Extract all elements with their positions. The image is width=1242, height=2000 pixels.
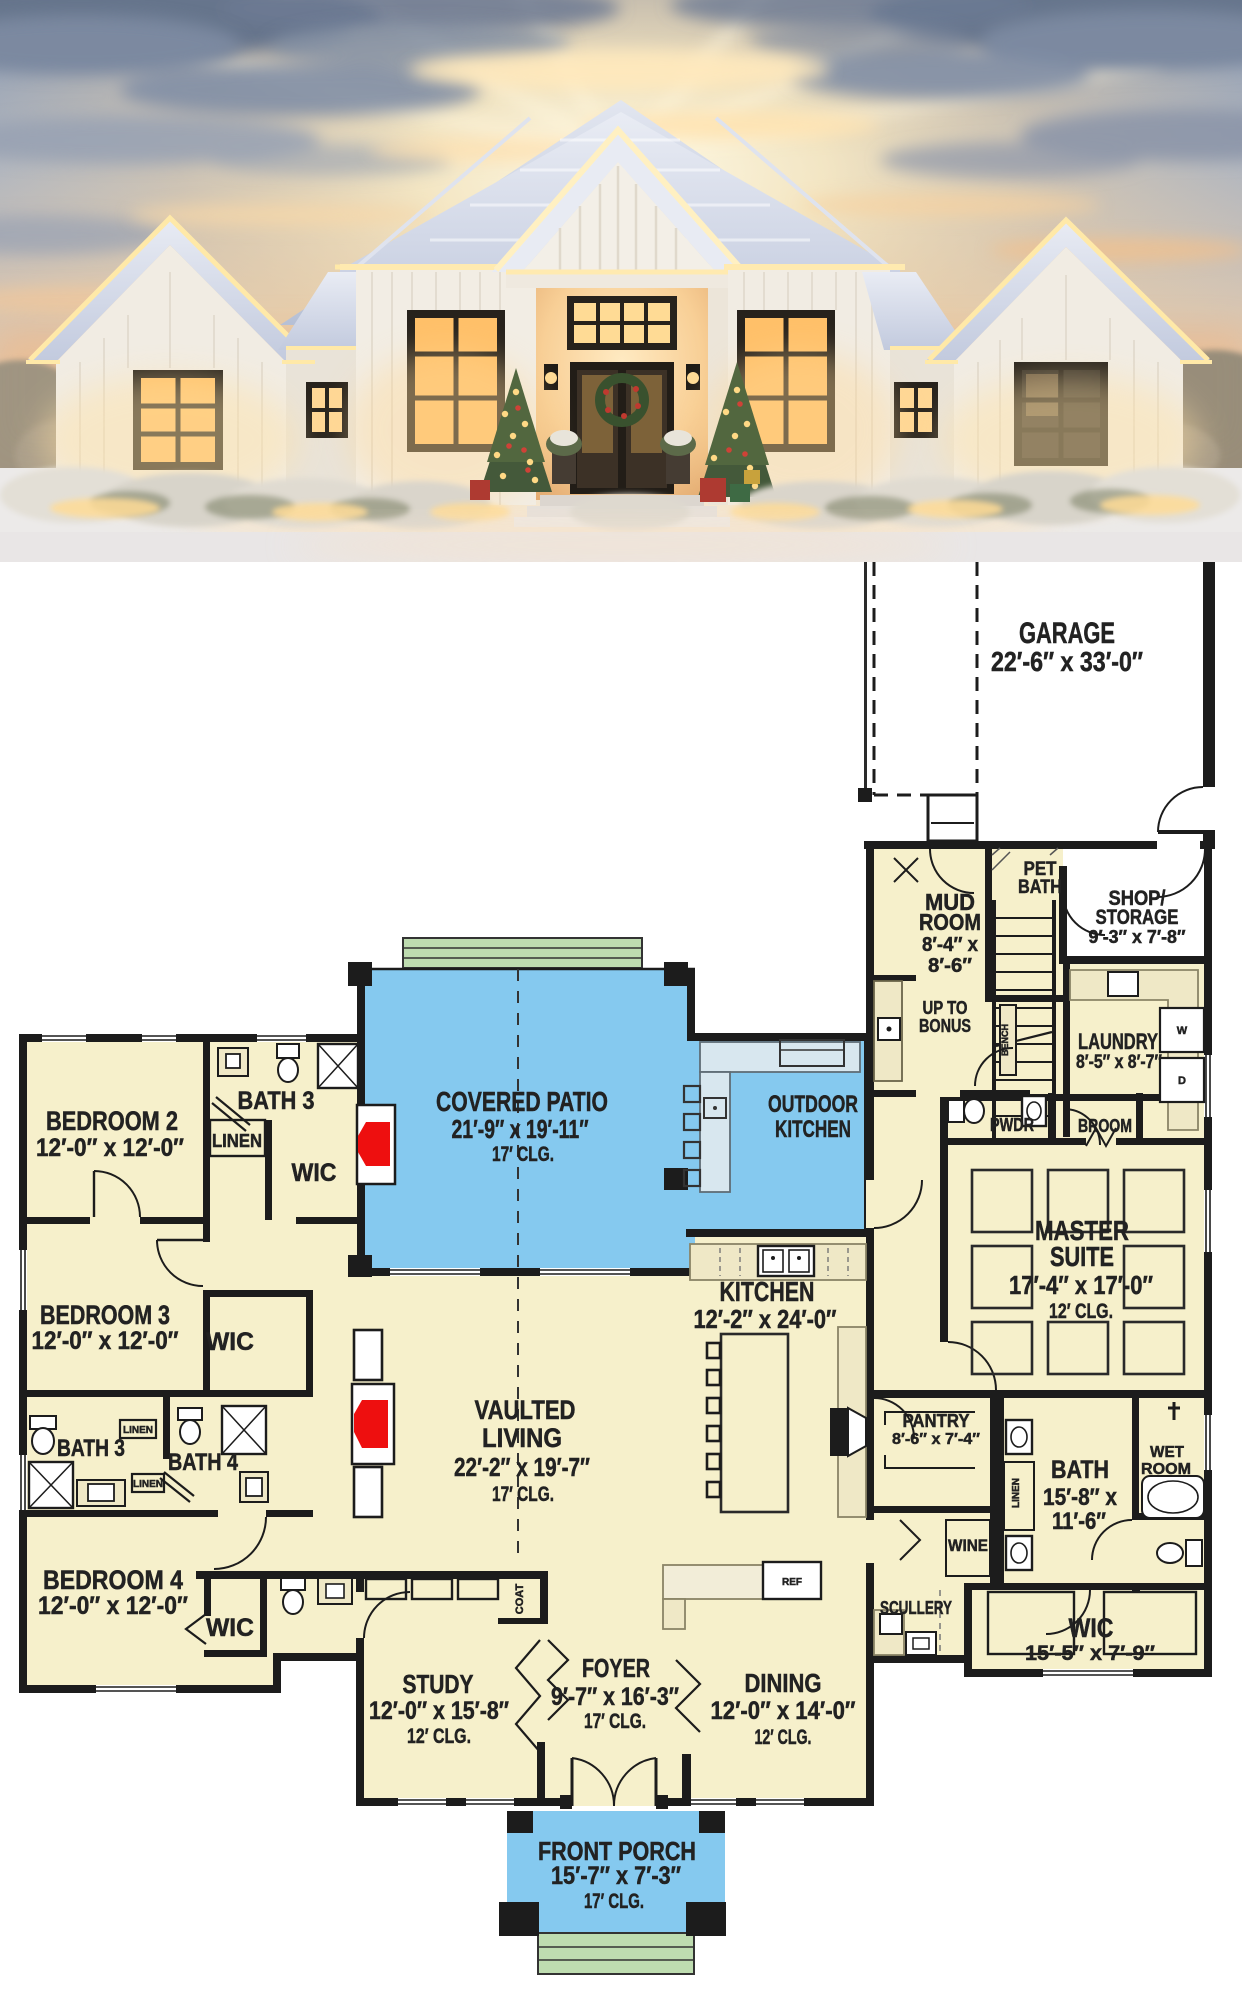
svg-text:12′ CLG.: 12′ CLG. [407, 1725, 471, 1748]
svg-text:WIC: WIC [292, 1159, 337, 1187]
svg-text:BENCH: BENCH [1000, 1024, 1010, 1056]
svg-text:WIC: WIC [206, 1614, 254, 1642]
svg-text:15′-7″ x 7′-3″: 15′-7″ x 7′-3″ [551, 1862, 681, 1890]
svg-text:8′-5″ x 8′-7″: 8′-5″ x 8′-7″ [1076, 1052, 1162, 1073]
svg-text:9′-3″ x 7′-8″: 9′-3″ x 7′-8″ [1089, 927, 1186, 947]
svg-text:15′-8″ x: 15′-8″ x [1043, 1484, 1118, 1511]
svg-text:PWDR: PWDR [990, 1115, 1034, 1135]
svg-text:REF: REF [782, 1577, 802, 1588]
svg-text:LINEN: LINEN [212, 1131, 262, 1151]
svg-text:12′ CLG.: 12′ CLG. [1049, 1300, 1113, 1323]
svg-text:WINE: WINE [948, 1536, 988, 1555]
svg-text:17′-4″ x 17′-0″: 17′-4″ x 17′-0″ [1009, 1270, 1153, 1300]
svg-text:BEDROOM 2: BEDROOM 2 [46, 1106, 178, 1136]
svg-text:KITCHEN: KITCHEN [775, 1116, 851, 1143]
svg-text:D: D [1178, 1075, 1186, 1087]
svg-text:LINEN: LINEN [133, 1479, 163, 1490]
svg-text:WIC: WIC [206, 1328, 254, 1356]
svg-text:WIC: WIC [1069, 1613, 1114, 1643]
svg-text:SCULLERY: SCULLERY [880, 1598, 952, 1618]
svg-text:LAUNDRY: LAUNDRY [1078, 1029, 1158, 1054]
svg-text:22′-2″ x 19′-7″: 22′-2″ x 19′-7″ [454, 1452, 590, 1482]
svg-text:BATH 4: BATH 4 [168, 1449, 239, 1476]
svg-text:W: W [1177, 1025, 1188, 1037]
svg-text:UP TO: UP TO [923, 998, 968, 1018]
svg-text:BATH: BATH [1018, 877, 1062, 898]
svg-text:12′-0″ x 14′-0″: 12′-0″ x 14′-0″ [711, 1697, 856, 1725]
svg-text:BATH: BATH [1051, 1456, 1109, 1484]
svg-text:8′-6″ x 7′-4″: 8′-6″ x 7′-4″ [892, 1431, 980, 1448]
svg-text:FOYER: FOYER [582, 1653, 650, 1683]
svg-text:BROOM: BROOM [1078, 1116, 1132, 1136]
svg-text:BATH 3: BATH 3 [238, 1087, 315, 1115]
svg-text:BATH 3: BATH 3 [57, 1435, 125, 1462]
svg-text:ROOM: ROOM [1141, 1461, 1191, 1478]
svg-text:22′-6″ x 33′-0″: 22′-6″ x 33′-0″ [991, 646, 1143, 677]
svg-text:STUDY: STUDY [403, 1669, 474, 1699]
svg-text:12′ CLG.: 12′ CLG. [755, 1726, 812, 1749]
svg-text:11′-6″: 11′-6″ [1052, 1508, 1106, 1535]
svg-text:COAT: COAT [514, 1584, 526, 1615]
svg-text:OUTDOOR: OUTDOOR [768, 1091, 858, 1118]
svg-text:17′ CLG.: 17′ CLG. [584, 1710, 646, 1733]
svg-text:BEDROOM 4: BEDROOM 4 [43, 1565, 183, 1595]
svg-text:COVERED PATIO: COVERED PATIO [436, 1086, 608, 1117]
svg-text:BONUS: BONUS [919, 1016, 971, 1036]
svg-text:KITCHEN: KITCHEN [720, 1276, 815, 1307]
svg-text:8′-6″: 8′-6″ [928, 955, 972, 977]
svg-text:12′-2″ x 24′-0″: 12′-2″ x 24′-0″ [694, 1304, 837, 1334]
svg-text:WET: WET [1150, 1444, 1184, 1461]
svg-text:17′ CLG.: 17′ CLG. [492, 1483, 554, 1506]
svg-text:12′-0″ x 12′-0″: 12′-0″ x 12′-0″ [36, 1134, 184, 1162]
svg-text:LIVING: LIVING [482, 1423, 562, 1453]
svg-text:LINEN: LINEN [123, 1425, 153, 1436]
svg-text:12′-0″ x 12′-0″: 12′-0″ x 12′-0″ [38, 1592, 188, 1620]
svg-text:SUITE: SUITE [1050, 1241, 1114, 1272]
svg-text:BEDROOM 3: BEDROOM 3 [40, 1300, 170, 1330]
svg-text:LINEN: LINEN [1011, 1478, 1022, 1508]
svg-text:17′ CLG.: 17′ CLG. [584, 1890, 644, 1913]
svg-text:9′-7″ x 16′-3″: 9′-7″ x 16′-3″ [551, 1683, 679, 1711]
svg-text:STORAGE: STORAGE [1096, 906, 1179, 929]
svg-text:ROOM: ROOM [919, 909, 981, 935]
svg-text:12′-0″ x 12′-0″: 12′-0″ x 12′-0″ [32, 1327, 179, 1355]
svg-text:DINING: DINING [745, 1668, 822, 1698]
svg-text:12′-0″ x 15′-8″: 12′-0″ x 15′-8″ [369, 1697, 509, 1725]
svg-text:17′ CLG.: 17′ CLG. [492, 1143, 554, 1166]
svg-text:15′-5″ x 7′-9″: 15′-5″ x 7′-9″ [1025, 1642, 1155, 1665]
svg-text:8′-4″ x: 8′-4″ x [922, 934, 978, 956]
svg-text:VAULTED: VAULTED [475, 1395, 576, 1425]
svg-text:21′-9″ x 19′-11″: 21′-9″ x 19′-11″ [452, 1114, 589, 1144]
